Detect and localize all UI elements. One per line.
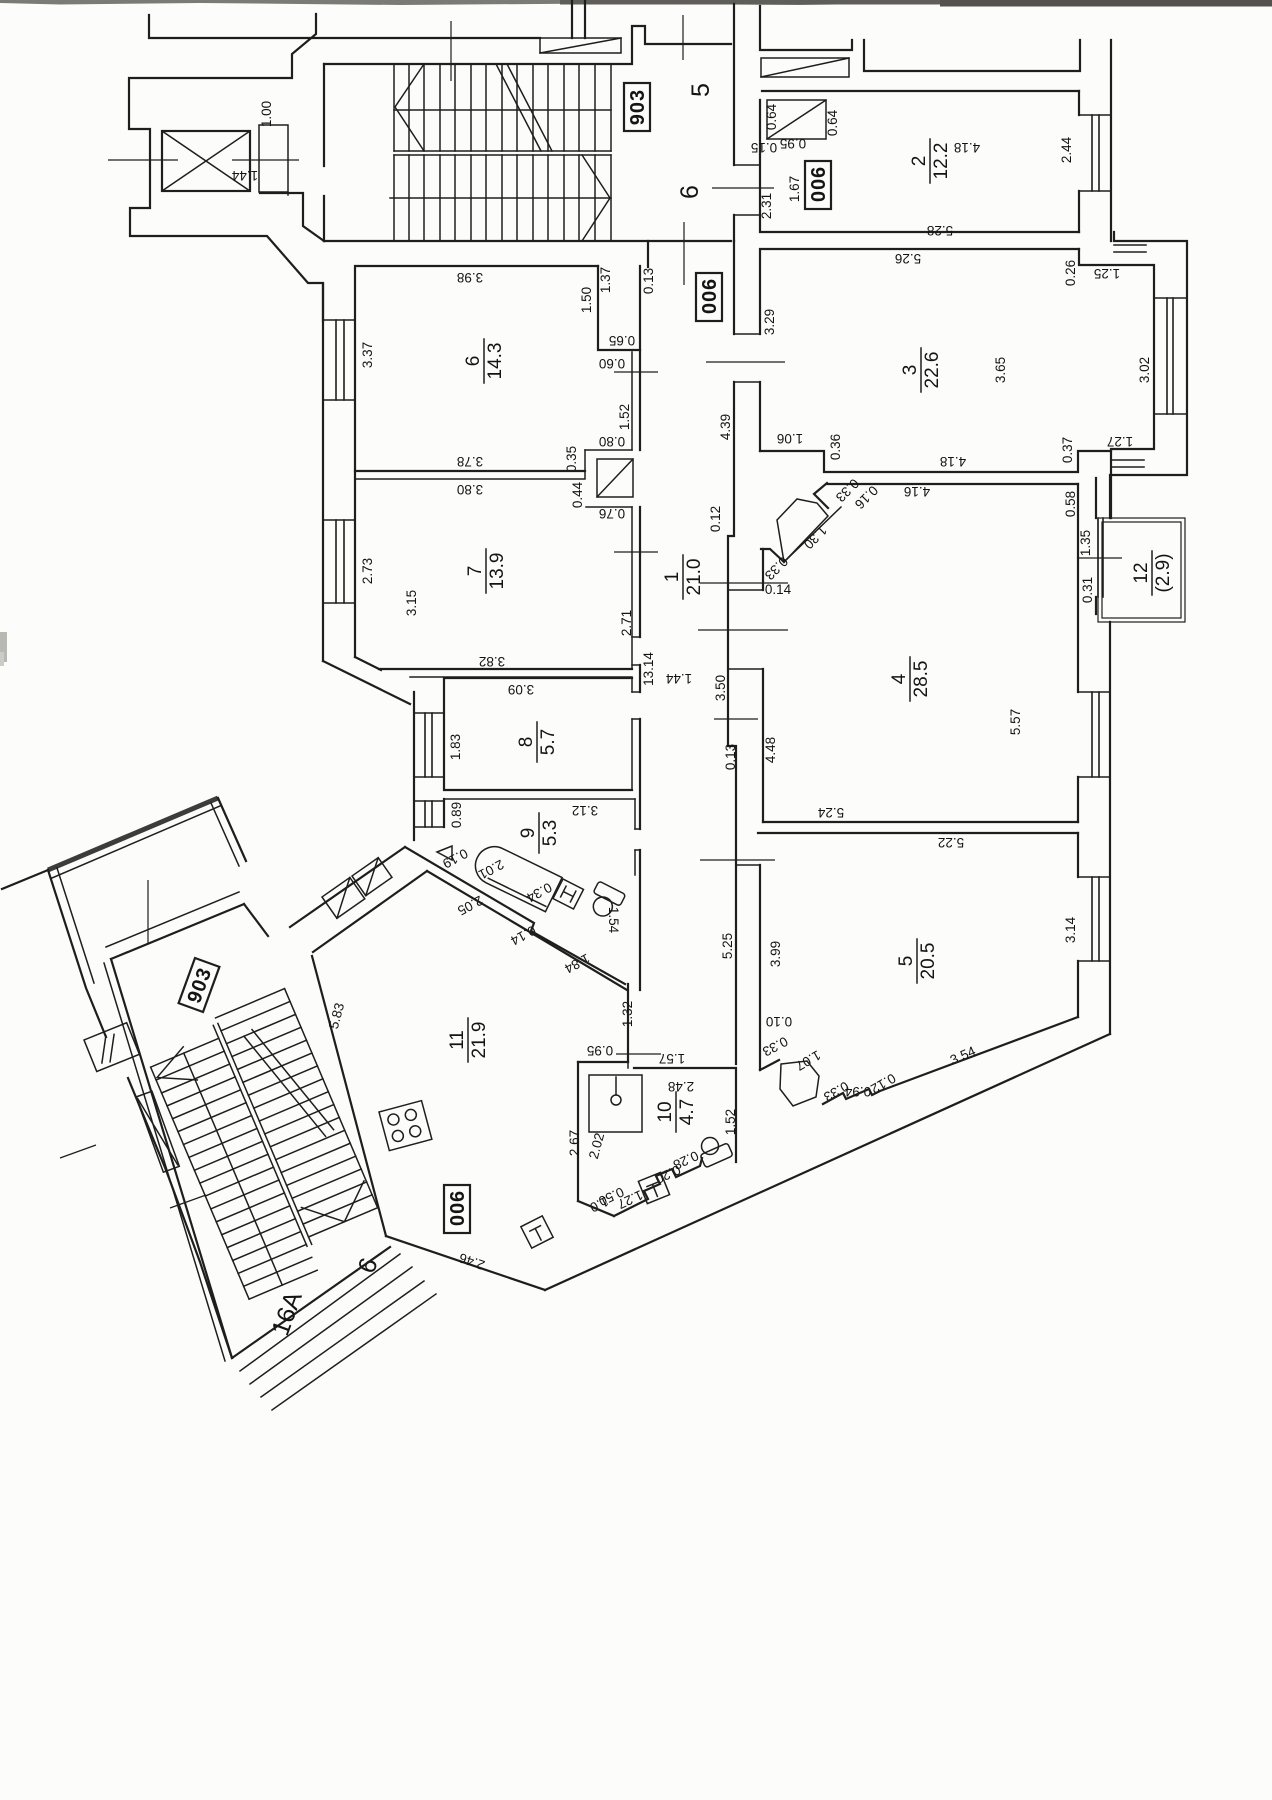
svg-text:900: 900 [697, 279, 719, 315]
svg-text:0.13: 0.13 [723, 744, 738, 770]
svg-text:14.3: 14.3 [485, 343, 506, 380]
svg-text:(2.9): (2.9) [1153, 553, 1174, 592]
svg-text:4.18: 4.18 [954, 140, 980, 155]
svg-text:0.10: 0.10 [766, 1014, 792, 1029]
svg-text:3.09: 3.09 [508, 682, 534, 697]
svg-text:5: 5 [896, 956, 917, 967]
svg-text:1.57: 1.57 [659, 1051, 685, 1066]
svg-text:0.26: 0.26 [1063, 260, 1078, 286]
svg-text:1.83: 1.83 [448, 734, 463, 760]
svg-text:0.44: 0.44 [570, 481, 585, 508]
svg-text:9: 9 [518, 828, 539, 839]
svg-text:3.99: 3.99 [768, 941, 783, 967]
svg-text:0.12: 0.12 [708, 506, 723, 532]
svg-text:1.37: 1.37 [598, 267, 613, 293]
svg-text:0.65: 0.65 [609, 333, 635, 348]
svg-text:0.35: 0.35 [564, 446, 579, 472]
svg-text:1.06: 1.06 [777, 431, 803, 446]
svg-text:0.94: 0.94 [844, 1084, 871, 1099]
svg-text:3.80: 3.80 [457, 482, 483, 497]
svg-text:1.00: 1.00 [259, 101, 274, 127]
svg-text:5.7: 5.7 [538, 729, 559, 755]
svg-text:1.52: 1.52 [723, 1109, 738, 1135]
svg-text:3.98: 3.98 [457, 270, 483, 285]
svg-text:0.36: 0.36 [828, 434, 843, 460]
svg-text:0.60: 0.60 [599, 356, 625, 371]
svg-text:0.64: 0.64 [764, 103, 779, 130]
svg-text:5.3: 5.3 [540, 820, 561, 846]
svg-text:21.0: 21.0 [684, 559, 705, 596]
svg-text:3.29: 3.29 [762, 309, 777, 335]
svg-text:5.25: 5.25 [720, 933, 735, 959]
svg-text:0.15: 0.15 [751, 140, 777, 155]
svg-text:4.39: 4.39 [718, 414, 733, 440]
svg-text:11: 11 [447, 1030, 468, 1050]
svg-text:2.67: 2.67 [567, 1130, 582, 1156]
svg-text:1.52: 1.52 [617, 404, 632, 430]
svg-text:4: 4 [889, 673, 910, 684]
svg-text:0.95: 0.95 [780, 136, 806, 151]
svg-text:1.54: 1.54 [606, 907, 621, 934]
svg-text:22.6: 22.6 [922, 352, 943, 389]
svg-text:6: 6 [463, 356, 484, 367]
svg-text:0.64: 0.64 [825, 109, 840, 136]
svg-text:3.82: 3.82 [479, 654, 505, 669]
svg-text:0.14: 0.14 [765, 582, 792, 597]
svg-text:1.32: 1.32 [620, 1001, 635, 1027]
svg-text:0.31: 0.31 [1080, 577, 1095, 603]
svg-text:3.78: 3.78 [457, 454, 483, 469]
svg-text:1.27: 1.27 [1107, 434, 1133, 449]
svg-text:3.65: 3.65 [993, 357, 1008, 383]
svg-text:3.14: 3.14 [1063, 916, 1078, 943]
svg-text:3.50: 3.50 [713, 675, 728, 701]
svg-text:1.67: 1.67 [787, 176, 802, 202]
svg-text:21.9: 21.9 [469, 1022, 490, 1059]
svg-text:2.31: 2.31 [759, 193, 774, 219]
svg-text:13.14: 13.14 [641, 652, 656, 686]
svg-text:4.7: 4.7 [677, 1099, 698, 1125]
svg-text:3.12: 3.12 [572, 803, 598, 818]
svg-text:3.15: 3.15 [404, 590, 419, 616]
svg-text:20.5: 20.5 [918, 943, 939, 980]
svg-text:0.37: 0.37 [1060, 437, 1075, 463]
svg-text:5: 5 [687, 83, 715, 97]
svg-text:3.02: 3.02 [1137, 357, 1152, 383]
svg-text:0.80: 0.80 [599, 434, 625, 449]
svg-text:7: 7 [465, 566, 486, 577]
svg-text:2: 2 [909, 156, 930, 167]
svg-text:8: 8 [516, 737, 537, 748]
svg-text:5.24: 5.24 [817, 805, 844, 820]
svg-text:12.2: 12.2 [931, 143, 952, 180]
svg-text:4.18: 4.18 [940, 454, 966, 469]
svg-text:5.26: 5.26 [895, 251, 921, 266]
svg-text:2.44: 2.44 [1059, 136, 1074, 163]
svg-text:1.25: 1.25 [1094, 266, 1120, 281]
svg-text:12: 12 [1131, 562, 1152, 583]
svg-text:1.44: 1.44 [231, 168, 258, 183]
svg-text:0.89: 0.89 [449, 802, 464, 828]
svg-text:3: 3 [900, 365, 921, 376]
svg-text:2.48: 2.48 [668, 1079, 694, 1094]
svg-text:1.35: 1.35 [1078, 530, 1093, 556]
svg-text:903: 903 [627, 89, 649, 125]
svg-text:900: 900 [445, 1191, 467, 1227]
svg-text:13.9: 13.9 [487, 553, 508, 590]
svg-text:1: 1 [662, 572, 683, 583]
svg-text:0.76: 0.76 [599, 506, 625, 521]
svg-text:5.57: 5.57 [1008, 709, 1023, 735]
svg-text:0.58: 0.58 [1063, 491, 1078, 517]
svg-text:900: 900 [806, 167, 828, 203]
svg-text:5.22: 5.22 [938, 835, 964, 850]
svg-text:4.16: 4.16 [904, 484, 930, 499]
svg-text:4.48: 4.48 [763, 737, 778, 763]
svg-text:0.95: 0.95 [587, 1043, 613, 1058]
svg-text:28.5: 28.5 [911, 661, 932, 698]
svg-text:6: 6 [676, 185, 704, 199]
svg-text:10: 10 [655, 1101, 676, 1122]
svg-text:2.73: 2.73 [360, 558, 375, 584]
svg-text:1.44: 1.44 [665, 671, 692, 686]
svg-text:0.13: 0.13 [641, 268, 656, 294]
svg-text:1.50: 1.50 [579, 287, 594, 313]
svg-text:5.28: 5.28 [927, 223, 953, 238]
svg-text:3.37: 3.37 [360, 342, 375, 368]
